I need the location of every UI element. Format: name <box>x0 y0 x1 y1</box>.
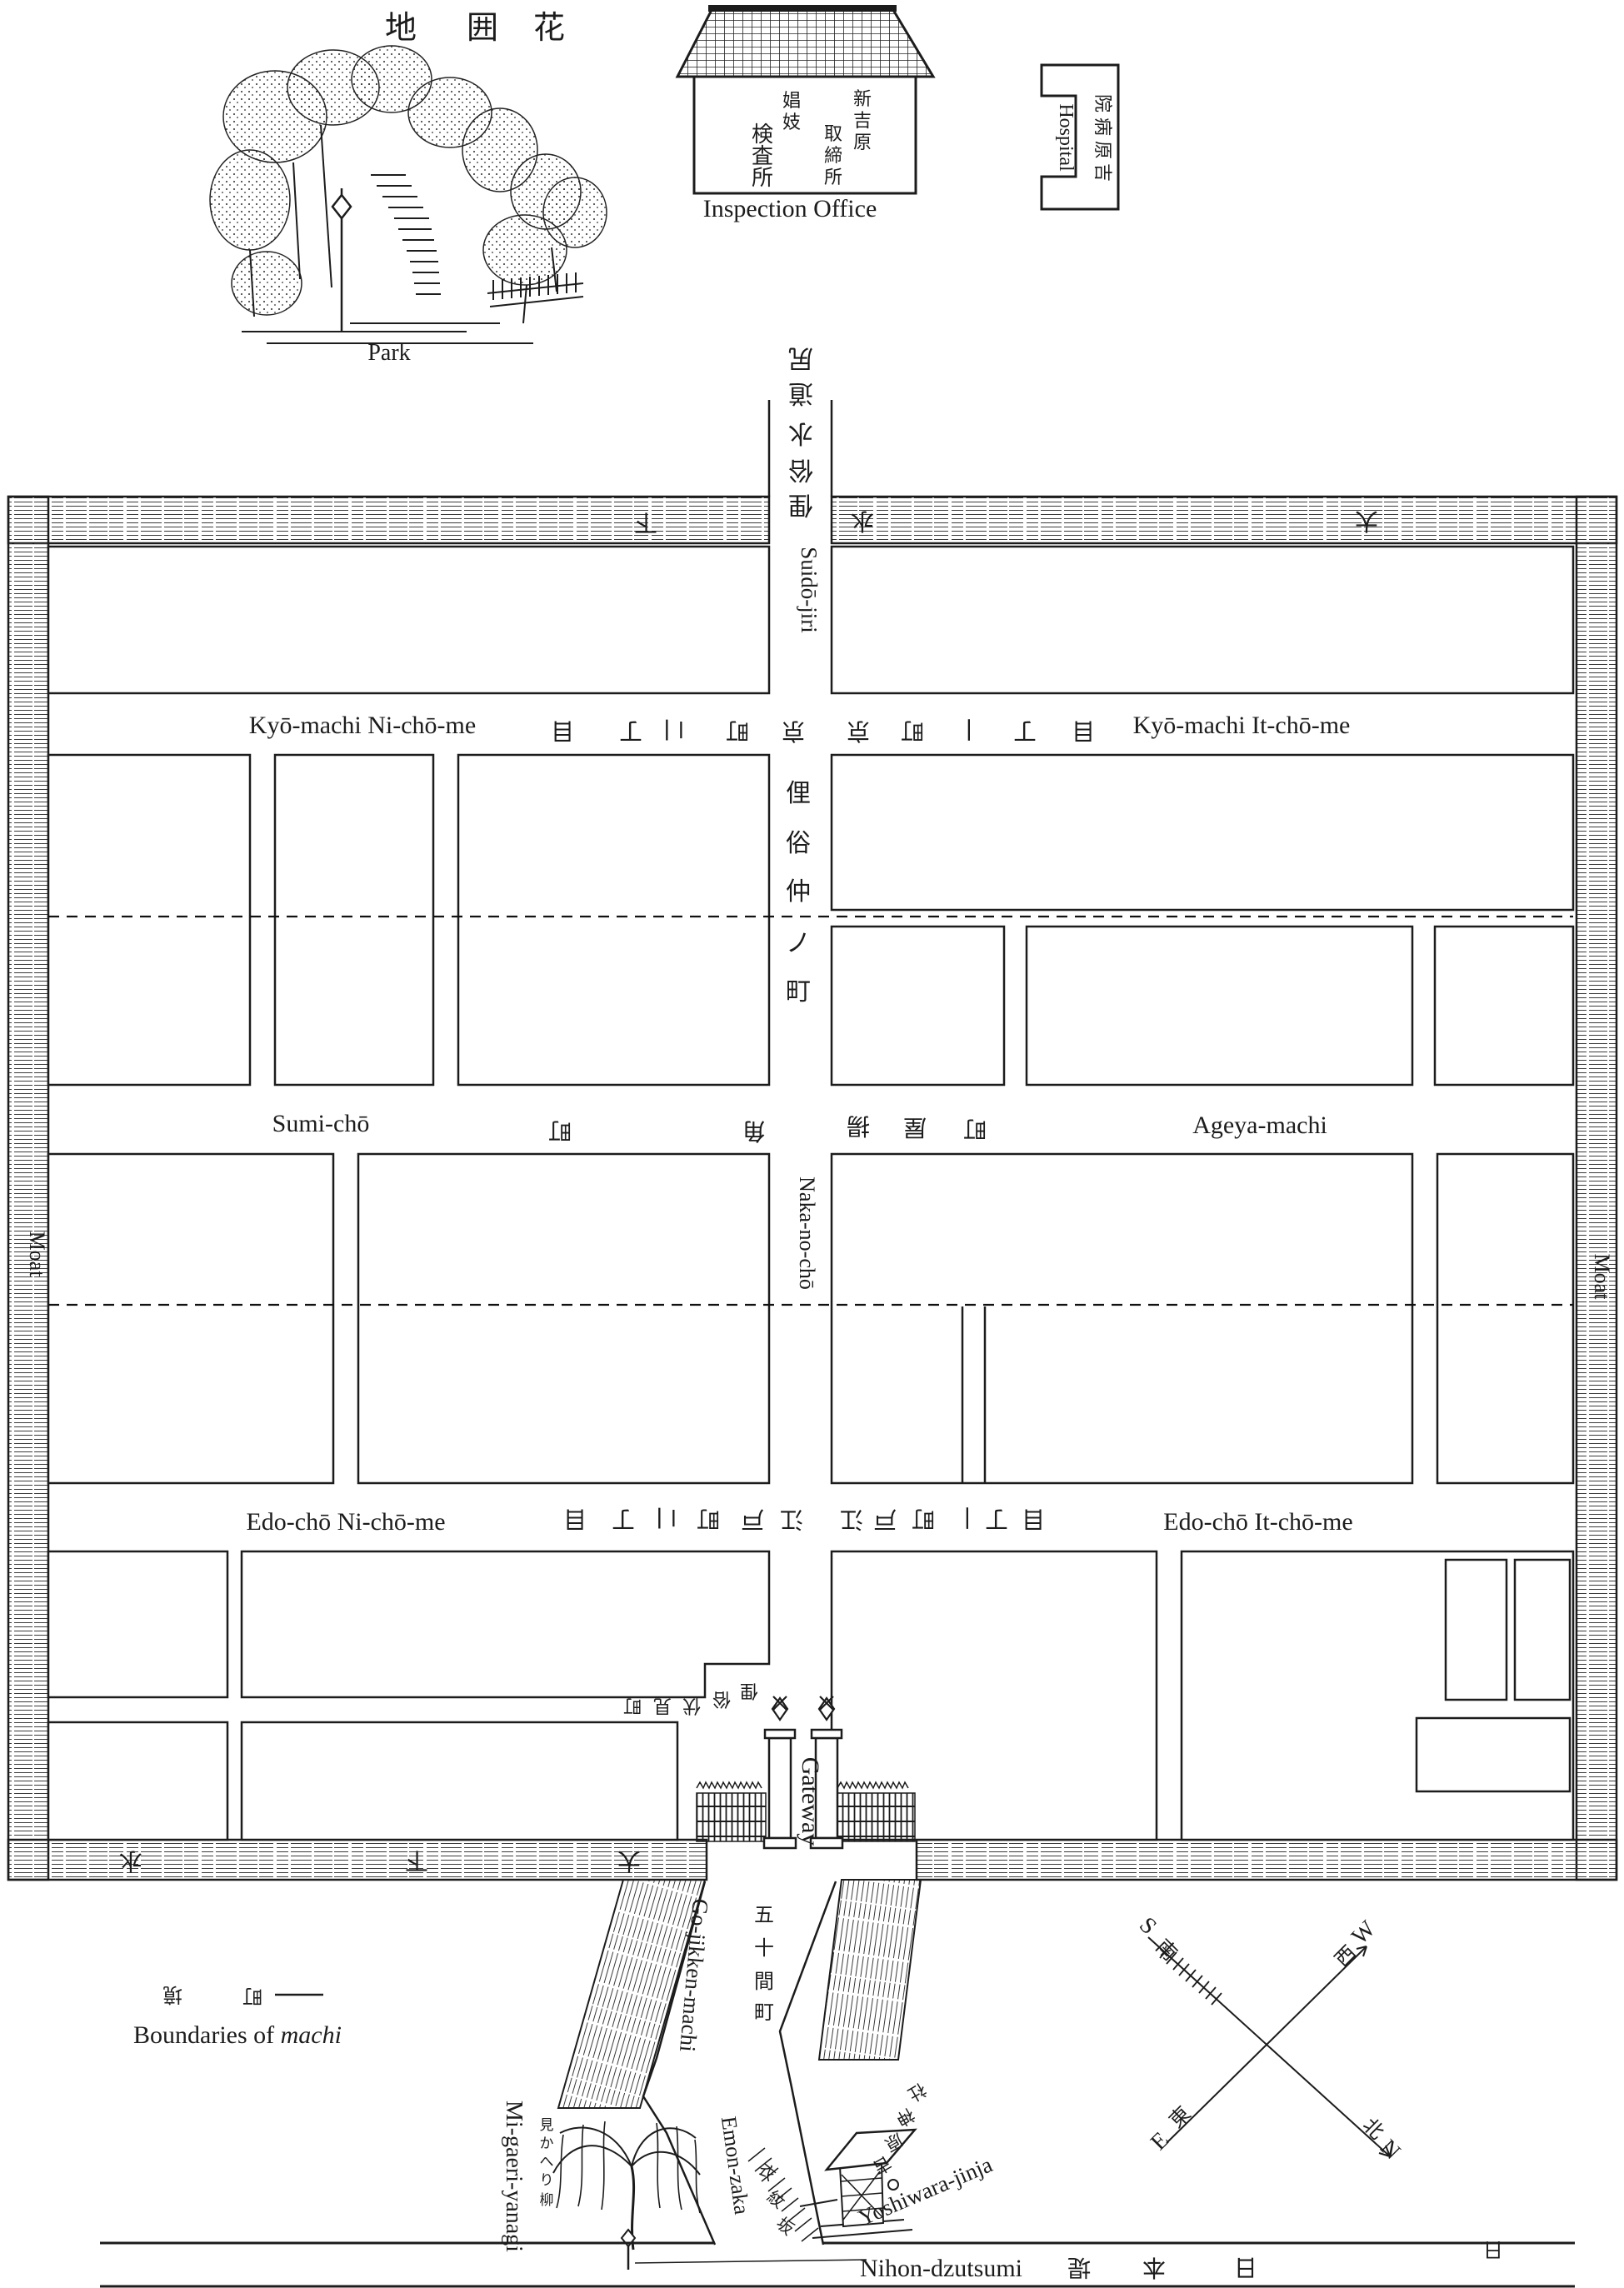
emon-zaka-jp: 衣 紋 坂 <box>754 2159 798 2239</box>
hospital-illustration: Hospital 院 病 原 吉 <box>1042 65 1118 209</box>
jp-char: 水 <box>851 507 874 535</box>
office-jp-char: 所 <box>824 167 842 188</box>
jp-char: 南 <box>1152 1935 1182 1966</box>
compass-letter-e: E <box>1146 2127 1174 2156</box>
jp-char: 戸 <box>741 1506 764 1533</box>
jp-char: 俗 <box>788 455 813 484</box>
gateway-fence-right <box>837 1793 915 1841</box>
edo-cho-ni-chome-jp: 目 丁 二 町 戸 江 <box>563 1506 803 1533</box>
hospital-jp-char: 吉 <box>1092 163 1112 182</box>
jp-char: 町 <box>786 977 811 1007</box>
jp-char: 丁 <box>612 1506 635 1533</box>
jp-char: 目 <box>1022 1506 1045 1533</box>
jp-char: 俗 <box>786 829 811 858</box>
jp-char: 俗 <box>712 1688 731 1709</box>
city-block <box>1417 1718 1570 1791</box>
compass-east: E 東 <box>1145 2102 1198 2156</box>
compass-letter-n: N <box>1375 2135 1405 2165</box>
gate-post-finials <box>772 1696 834 1720</box>
jp-char: 見 <box>653 1695 672 1716</box>
office-jp-char: 吉 <box>853 111 872 132</box>
jp-char: り <box>540 2172 554 2189</box>
compass-rose: S 南 北 N 西 W E 東 <box>1132 1912 1407 2165</box>
jp-char: 伏 <box>682 1695 701 1716</box>
jp-char: 町 <box>754 2001 774 2024</box>
kyo-machi-it-chome-jp: 京 町 一 丁 目 <box>847 717 1095 745</box>
jp-char: 十 <box>754 1936 774 1960</box>
street-label-emon-zaka: Emon-zaka <box>717 2115 754 2216</box>
city-block <box>832 547 1573 693</box>
willow-illustration <box>553 2121 867 2270</box>
jp-char: ノ <box>786 929 811 958</box>
office-jp-char: 原 <box>853 132 872 153</box>
yoshiwara-map-illustration: 地 囲 花 Park 新 吉 原 取 <box>0 0 1624 2288</box>
park-illustration <box>210 46 607 315</box>
moat-band-bottom-right <box>917 1840 1617 1880</box>
city-block <box>48 755 250 1085</box>
jp-char: 水 <box>119 1847 142 1875</box>
street-label-sumi-cho: Sumi-chō <box>272 1110 370 1137</box>
jp-char: 屋 <box>903 1114 927 1142</box>
street-label-kyo-machi-ni-chome: Kyō-machi Ni-chō-me <box>249 712 476 739</box>
park-lamp <box>332 188 351 332</box>
street-label-naka-no-cho: Naka-no-chō <box>795 1176 819 1290</box>
jp-char: 東 <box>1165 2102 1196 2133</box>
jp-char: か <box>540 2136 554 2152</box>
city-block <box>48 1722 227 1840</box>
city-block <box>1435 927 1573 1085</box>
jp-char: 一 <box>952 1506 980 1530</box>
jp-char: 町 <box>548 1117 572 1145</box>
jp-char: 下 <box>634 509 657 537</box>
city-block <box>48 1551 227 1697</box>
jp-char: 目 <box>563 1506 587 1533</box>
city-block <box>1437 1154 1573 1483</box>
jp-char: 町 <box>901 717 924 745</box>
jp-char: 町 <box>697 1506 720 1533</box>
compass-south: S 南 <box>1132 1912 1186 1966</box>
jp-char: 揚 <box>847 1112 870 1140</box>
city-block <box>242 1722 677 1840</box>
jp-char: 大 <box>617 1847 641 1875</box>
park-label: Park <box>367 340 410 366</box>
legend-label: Boundaries of machi <box>133 2021 342 2049</box>
jp-char: 丁 <box>985 1506 1008 1533</box>
jp-char: 堤 <box>1067 2254 1091 2281</box>
jp-char: 柳 <box>540 2192 554 2209</box>
jp-char: 仲 <box>786 877 811 907</box>
gate-post-left <box>769 1738 791 1838</box>
hospital-label: Hospital <box>1055 103 1077 172</box>
hospital-jp-char: 原 <box>1092 141 1112 159</box>
suidojiri-street: 尻 道 水 俗 俚 Suidō-jiri <box>769 343 832 633</box>
jp-char: 町 <box>912 1506 935 1533</box>
street-label-edo-cho-it-chome: Edo-chō It-chō-me <box>1163 1508 1352 1536</box>
jp-char: 丁 <box>1013 717 1037 745</box>
office-jp-char: 所 <box>752 166 773 191</box>
scanned-map-page: 地 囲 花 Park 新 吉 原 取 <box>0 0 1624 2288</box>
moat-band-top-right <box>832 497 1617 543</box>
hospital-jp-char: 院 <box>1092 94 1112 112</box>
title-char: 囲 <box>467 9 498 46</box>
jp-char: 二 <box>652 1506 680 1530</box>
jp-char: 江 <box>780 1506 803 1533</box>
office-jp-char: 取 <box>824 124 842 145</box>
city-block <box>1027 927 1412 1085</box>
jp-char: 町 <box>963 1116 987 1143</box>
naka-no-cho-jp: 俚 俗 仲 ノ 町 <box>786 779 811 1007</box>
jp-char: 丁 <box>619 717 642 745</box>
inspection-office-illustration: 新 吉 原 取 締 所 娼 妓 検 査 所 Inspection Office <box>677 5 933 222</box>
jp-char: 水 <box>788 418 813 447</box>
embankment-band-right <box>819 1880 921 2060</box>
city-block <box>832 1154 1412 1483</box>
city-block <box>832 927 1004 1085</box>
office-jp-char: 妓 <box>782 112 801 133</box>
edo-cho-it-chome-jp: 江 戸 町 一 丁 目 <box>840 1506 1045 1533</box>
compass-letter-w: W <box>1347 1916 1381 1950</box>
jp-char: 戸 <box>873 1506 897 1533</box>
jp-char: 目 <box>1072 717 1095 745</box>
jp-char: 境 <box>162 1983 182 2006</box>
go-jikken-machi-jp: 五 十 間 町 <box>754 1903 774 2024</box>
city-block <box>242 1551 769 1697</box>
jp-char: 俚 <box>786 779 811 808</box>
jp-char: 見 <box>540 2117 554 2134</box>
jp-char: 道 <box>788 378 813 407</box>
kyo-machi-ni-chome-jp: 目 丁 二 町 京 <box>551 717 805 745</box>
city-block <box>1446 1560 1507 1700</box>
jp-char: 江 <box>840 1506 863 1533</box>
mi-gaeri-yanagi-jp: 見 か へ り 柳 <box>540 2117 554 2209</box>
city-block <box>458 755 769 1085</box>
nihon-dzutsumi-jp: 堤 本 日 日 <box>1067 2238 1503 2281</box>
gateway-fence-left <box>697 1793 766 1841</box>
city-block <box>275 755 433 1085</box>
ageya-machi-jp: 揚 屋 町 <box>847 1112 987 1143</box>
jp-char: 神 <box>892 2104 917 2130</box>
jp-char: 日 <box>1234 2254 1257 2281</box>
jp-char: 社 <box>904 2079 929 2105</box>
city-block <box>1515 1560 1570 1700</box>
city-block <box>48 1154 333 1483</box>
title-char: 地 <box>385 9 417 46</box>
jp-char: 衣 <box>754 2159 780 2185</box>
jp-char: へ <box>540 2154 554 2171</box>
jp-char: 京 <box>847 717 870 745</box>
map-title: 地 囲 花 <box>385 9 565 46</box>
office-jp-char: 新 <box>853 89 872 110</box>
inspection-office-label: Inspection Office <box>703 195 877 222</box>
jp-char: 京 <box>782 717 805 745</box>
jp-char: 一 <box>954 718 982 742</box>
moat-band-bottom-left <box>8 1840 707 1880</box>
jp-char: 二 <box>660 718 687 742</box>
street-label-edo-cho-ni-chome: Edo-chō Ni-chō-me <box>246 1508 445 1536</box>
title-char: 花 <box>533 9 565 46</box>
jp-char: 大 <box>1355 507 1378 535</box>
label-mi-gaeri-yanagi: Mi-gaeri-yanagi <box>501 2101 527 2252</box>
hospital-jp-char: 病 <box>1092 117 1112 136</box>
city-block <box>48 547 769 693</box>
compass-letter-s: S <box>1134 1912 1162 1940</box>
moat-band-left <box>8 497 48 1880</box>
street-label-suidojiri: Suidō-jiri <box>797 547 822 633</box>
yoshiwara-jinja-jp: 社 神 原 吉 <box>869 2079 929 2178</box>
jp-char: 西 <box>1330 1941 1361 1971</box>
jp-char: 角 <box>742 1117 766 1145</box>
jp-char: 俚 <box>740 1680 758 1701</box>
label-nihon-dzutsumi: Nihon-dzutsumi <box>860 2255 1022 2282</box>
jp-char: 町 <box>726 717 749 745</box>
office-jp-char: 締 <box>824 146 842 167</box>
jp-char: 下 <box>405 1847 428 1875</box>
jp-char: 町 <box>623 1695 642 1716</box>
moat-label-right: Moat <box>1590 1254 1614 1301</box>
jp-char: 本 <box>1142 2254 1166 2281</box>
jp-char: 間 <box>754 1970 774 1993</box>
city-block <box>832 755 1573 910</box>
compass-north: 北 N <box>1355 2113 1407 2165</box>
office-jp-char: 娼 <box>782 91 801 112</box>
compass-west: 西 W <box>1327 1916 1382 1971</box>
legend-boundaries: 境 町 Boundaries of machi <box>133 1983 342 2049</box>
jp-char: 日 <box>1483 2238 1503 2261</box>
nihon-dzutsumi-road <box>100 2243 1575 2286</box>
jp-char: 町 <box>242 1985 262 2008</box>
moat-band-right <box>1577 497 1617 1880</box>
jp-char: 五 <box>754 1903 774 1926</box>
city-block <box>358 1154 769 1483</box>
street-label-kyo-machi-it-chome: Kyō-machi It-chō-me <box>1133 712 1351 739</box>
gateway-label: Gateway <box>797 1757 824 1846</box>
jp-char: 俚 <box>788 490 813 519</box>
jp-char: 目 <box>551 717 574 745</box>
jp-char: 北 <box>1358 2113 1389 2144</box>
street-label-ageya-machi: Ageya-machi <box>1192 1112 1327 1139</box>
jp-char: 尻 <box>788 343 813 372</box>
moat-label-left: Moat <box>25 1231 49 1278</box>
sumi-cho-jp: 町 角 <box>548 1117 766 1145</box>
